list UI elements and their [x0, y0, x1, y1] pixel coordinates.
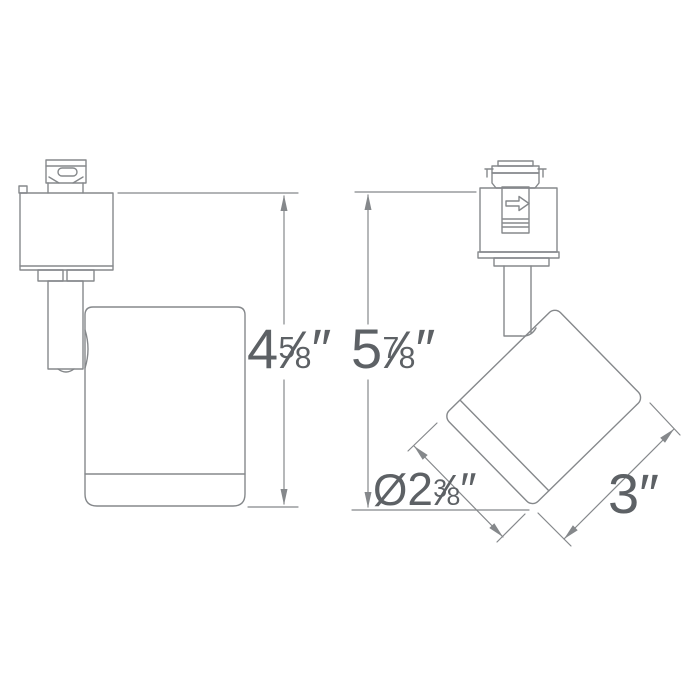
slide-direction-arrow-icon [506, 197, 529, 211]
lever-grip-lines [503, 219, 528, 227]
arrow-up-icon [365, 194, 372, 210]
dimension-denominator: 8 [399, 342, 416, 375]
connector-slot [58, 168, 77, 176]
adapter-base-plate [478, 252, 559, 258]
adapter-tab [19, 186, 27, 193]
front-view [444, 161, 644, 507]
inch-mark: ″ [311, 317, 331, 380]
connector-neck [48, 183, 83, 193]
arrow-down-icon [281, 489, 288, 505]
dimension-whole: 4 [247, 317, 278, 380]
connector-mid-block [492, 166, 539, 173]
connector-top-cap [498, 161, 533, 166]
stem-front [504, 266, 531, 336]
dimension-drawing [0, 0, 700, 700]
dimension-whole: 3 [608, 462, 639, 525]
inch-mark: ″ [639, 462, 659, 525]
adapter-sub-plate [494, 258, 549, 266]
dimension-label-side-height: 45⁄8″ [247, 321, 331, 377]
dimension-label-head-length: 3″ [608, 466, 659, 522]
locking-lever [502, 187, 529, 233]
dimension-label-head-diameter: Ø23⁄8″ [373, 466, 477, 513]
dimension-denominator: 8 [295, 342, 312, 375]
cylinder-head [85, 307, 245, 506]
ext-line-length-lower [538, 513, 571, 546]
adapter-body [20, 193, 113, 270]
adapter-foot-right [67, 270, 94, 281]
dimension-denominator: 8 [446, 484, 460, 511]
technical-drawing-page: 45⁄8″ 57⁄8″ Ø23⁄8″ 3″ [0, 0, 700, 700]
ext-line-diameter-upper [408, 423, 437, 451]
inch-mark: ″ [415, 317, 435, 380]
diameter-symbol: Ø [373, 466, 407, 515]
side-view [19, 160, 245, 506]
stem [48, 281, 83, 369]
dimension-whole: 2 [407, 463, 433, 515]
ext-line-length-upper [650, 403, 680, 435]
arrow-up-icon [281, 195, 288, 211]
connector-bevel-lines [49, 177, 83, 183]
adapter-foot-left [38, 270, 63, 281]
arrow-down-icon [365, 492, 372, 508]
inch-mark: ″ [460, 463, 476, 515]
ext-line-diameter-lower [497, 514, 525, 542]
connector-base [492, 173, 539, 188]
dimension-whole: 5 [351, 317, 382, 380]
dimension-label-front-height: 57⁄8″ [351, 321, 435, 377]
